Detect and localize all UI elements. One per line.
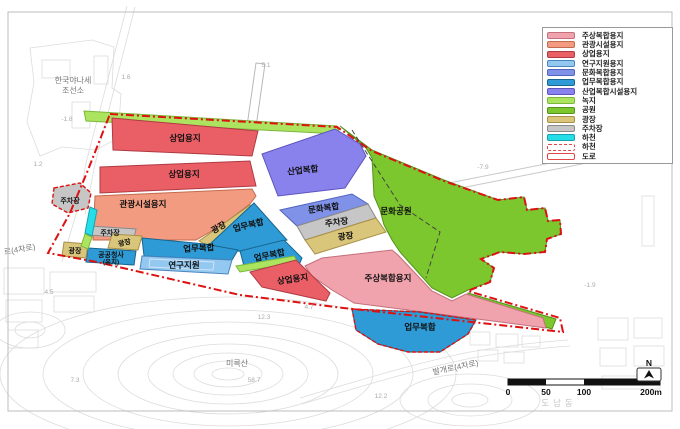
label-public-office-sub: (유치): [103, 257, 119, 266]
legend-swatch: [547, 51, 575, 58]
label-business-island: 업무복합: [404, 322, 435, 332]
legend-swatch: [547, 125, 575, 132]
spot-height: 12.3: [258, 314, 271, 321]
label-district-faded: 도남동: [541, 398, 576, 408]
spot-height: 58.7: [248, 377, 261, 384]
legend-label: 문화복합용지: [582, 69, 623, 77]
zone-industrial-mixed: [262, 129, 366, 196]
legend-swatch: [547, 41, 575, 48]
legend-swatch: [547, 69, 575, 76]
spot-height: 4.7: [304, 304, 313, 311]
legend-swatch: [547, 88, 575, 95]
basemap-shipyard-outline: [27, 40, 121, 156]
label-parking-strip: 주차장: [100, 228, 120, 237]
label-tourism: 관광시설용지: [120, 199, 167, 209]
legend-item: 하천: [543, 143, 672, 152]
legend-item: 녹지: [543, 96, 672, 105]
label-commercial-1: 상업용지: [169, 133, 200, 143]
legend-label: 상업용지: [582, 50, 610, 58]
label-business-2: 업무복합: [183, 242, 215, 254]
legend-swatch: [547, 107, 575, 114]
scale-bar-segment: [508, 379, 546, 385]
spot-height: 12.2: [375, 393, 388, 400]
spot-height: 1.6: [121, 74, 130, 81]
spot-height: 1.2: [33, 161, 42, 168]
legend-label: 업무복합용지: [582, 78, 623, 86]
legend-swatch: [547, 134, 575, 141]
legend-item: 상업용지: [543, 50, 672, 59]
legend-label: 산업복합시설용지: [582, 88, 637, 96]
legend-swatch: [547, 153, 575, 160]
label-culture-park: 문화공원: [380, 206, 411, 216]
legend-swatch: [547, 60, 575, 67]
legend-label: 광장: [582, 116, 596, 124]
legend-label: 공원: [582, 106, 596, 114]
legend-swatch: [547, 32, 575, 39]
spot-height: 4.5: [44, 289, 53, 296]
spot-height: -7.9: [477, 164, 489, 171]
label-public-office: 공공청사: [98, 250, 124, 259]
legend-item: 공원: [543, 105, 672, 114]
label-parking-blob: 주차장: [60, 196, 80, 205]
spot-height: 5.1: [261, 62, 270, 69]
legend-label: 주상복합용지: [582, 32, 623, 40]
legend-label: 도로: [582, 153, 596, 161]
legend-label: 하천: [582, 134, 596, 142]
scale-tick-0: 0: [506, 387, 511, 397]
legend-item: 산업복합시설용지: [543, 87, 672, 96]
legend-label: 연구지원용지: [582, 60, 623, 68]
legend-swatch: [547, 79, 575, 86]
legend: 주상복합용지 관광시설용지 상업용지 연구지원용지 문화복합용지 업무복합용지 …: [542, 27, 673, 164]
legend-swatch: [547, 97, 575, 104]
spot-height: -1.9: [584, 282, 596, 289]
legend-item: 하천: [543, 133, 672, 142]
legend-item: 주상복합용지: [543, 31, 672, 40]
legend-swatch: [547, 144, 575, 151]
legend-item: 도로: [543, 152, 672, 161]
label-shipyard-line2: 조선소: [62, 86, 84, 95]
legend-item: 광장: [543, 115, 672, 124]
zone-green-sliver-west: [81, 234, 92, 249]
legend-swatch: [547, 116, 575, 123]
plan-map-canvas: 상업용지 상업용지 관광시설용지 광장 업무복합 주차장 광장 광장 공공청사 …: [0, 0, 680, 429]
label-mountain: 미륵산: [226, 358, 249, 368]
label-plaza-3: 광장: [69, 246, 82, 255]
legend-label: 녹지: [582, 97, 596, 105]
legend-label: 관광시설용지: [582, 41, 623, 49]
scale-bar: 0 50 100 200m: [506, 379, 663, 397]
label-mixed-use: 주상복합용지: [365, 273, 412, 283]
legend-item: 연구지원용지: [543, 59, 672, 68]
legend-label: 하천: [582, 143, 596, 151]
spot-height: 7.3: [70, 377, 79, 384]
label-commercial-2: 상업용지: [168, 169, 199, 179]
north-arrow: N: [637, 358, 661, 381]
spot-height: -1.8: [61, 116, 73, 123]
legend-item: 주차장: [543, 124, 672, 133]
north-label: N: [646, 358, 652, 368]
legend-item: 업무복합용지: [543, 77, 672, 86]
scale-tick-100: 100: [577, 387, 591, 397]
legend-label: 주차장: [582, 125, 603, 133]
scale-tick-200m: 200m: [640, 387, 662, 397]
scale-tick-50: 50: [541, 387, 551, 397]
label-research: 연구지원: [168, 260, 199, 270]
label-shipyard-line1: 한국야나세: [55, 75, 92, 85]
